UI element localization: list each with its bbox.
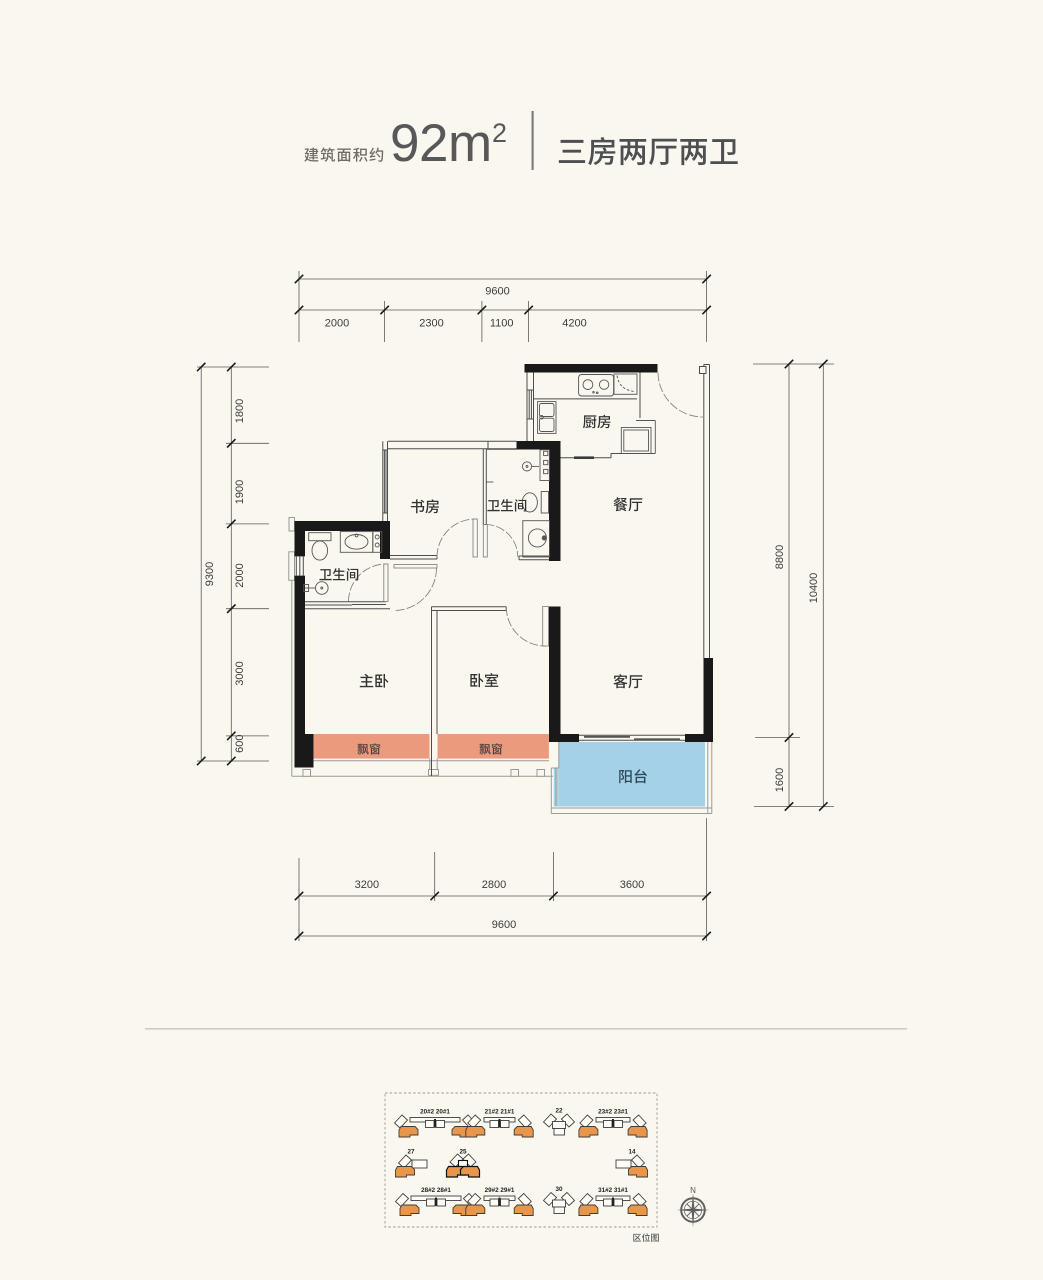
svg-text:9600: 9600	[485, 286, 509, 298]
svg-text:4200: 4200	[562, 318, 586, 330]
svg-text:2: 2	[492, 118, 507, 148]
svg-text:92m: 92m	[390, 114, 492, 173]
svg-text:3000: 3000	[234, 661, 246, 685]
svg-text:2000: 2000	[234, 563, 246, 587]
svg-text:1100: 1100	[490, 318, 514, 330]
svg-text:N: N	[690, 1186, 696, 1195]
svg-text:23#2 23#1: 23#2 23#1	[598, 1109, 628, 1116]
svg-text:9600: 9600	[492, 919, 516, 931]
svg-text:2000: 2000	[325, 318, 349, 330]
svg-text:8800: 8800	[774, 545, 786, 569]
svg-text:600: 600	[234, 735, 246, 753]
svg-text:1900: 1900	[234, 480, 246, 504]
svg-text:2300: 2300	[419, 318, 443, 330]
svg-text:25: 25	[459, 1149, 467, 1156]
svg-text:22: 22	[555, 1108, 563, 1115]
svg-text:28#2 28#1: 28#2 28#1	[421, 1187, 451, 1194]
svg-text:29#2 29#1: 29#2 29#1	[485, 1187, 515, 1194]
svg-text:10400: 10400	[808, 573, 820, 604]
svg-text:30: 30	[555, 1186, 563, 1193]
svg-text:31#2 31#1: 31#2 31#1	[598, 1187, 628, 1194]
svg-text:2800: 2800	[482, 879, 506, 891]
svg-text:27: 27	[407, 1149, 415, 1156]
svg-text:21#2 21#1: 21#2 21#1	[485, 1109, 515, 1116]
svg-text:9300: 9300	[204, 562, 216, 586]
svg-text:14: 14	[628, 1149, 636, 1156]
svg-text:20#2 20#1: 20#2 20#1	[420, 1109, 450, 1116]
svg-text:3600: 3600	[620, 879, 644, 891]
svg-text:3200: 3200	[355, 879, 379, 891]
svg-text:1800: 1800	[234, 399, 246, 423]
svg-text:1600: 1600	[774, 768, 786, 792]
